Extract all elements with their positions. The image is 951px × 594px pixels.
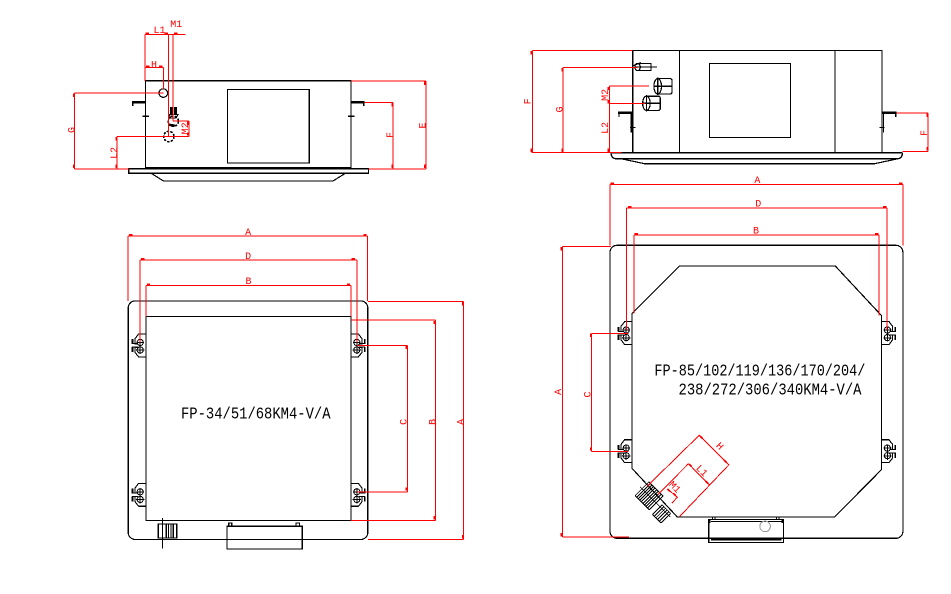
svg-text:M1: M1 (170, 20, 182, 31)
svg-text:F: F (523, 98, 534, 104)
svg-text:D: D (245, 252, 251, 263)
svg-text:M2: M2 (601, 89, 612, 101)
svg-text:G: G (556, 106, 567, 112)
svg-text:A: A (456, 419, 467, 425)
svg-text:FP-34/51/68KM4-V/A: FP-34/51/68KM4-V/A (181, 404, 331, 423)
svg-text:FP-85/102/119/136/170/204/: FP-85/102/119/136/170/204/ (654, 361, 865, 380)
svg-text:L1: L1 (153, 26, 165, 37)
svg-text:C: C (583, 391, 594, 397)
svg-text:A: A (245, 228, 251, 239)
svg-text:L2: L2 (110, 147, 121, 159)
svg-text:L1: L1 (693, 464, 709, 480)
svg-text:C: C (399, 419, 410, 425)
svg-text:B: B (428, 419, 439, 425)
svg-text:A: A (554, 389, 565, 395)
svg-text:L2: L2 (601, 122, 612, 134)
svg-text:B: B (753, 227, 759, 238)
svg-text:F: F (920, 130, 931, 136)
svg-text:M2: M2 (181, 122, 192, 134)
svg-text:D: D (755, 200, 761, 211)
svg-text:M1: M1 (666, 480, 682, 496)
svg-text:G: G (68, 127, 79, 133)
svg-text:H: H (713, 441, 725, 453)
svg-text:A: A (754, 176, 760, 187)
svg-text:E: E (419, 122, 430, 128)
svg-text:H: H (151, 60, 157, 71)
svg-text:B: B (245, 277, 251, 288)
svg-text:F: F (386, 132, 397, 138)
svg-text:238/272/306/340KM4-V/A: 238/272/306/340KM4-V/A (679, 380, 862, 399)
